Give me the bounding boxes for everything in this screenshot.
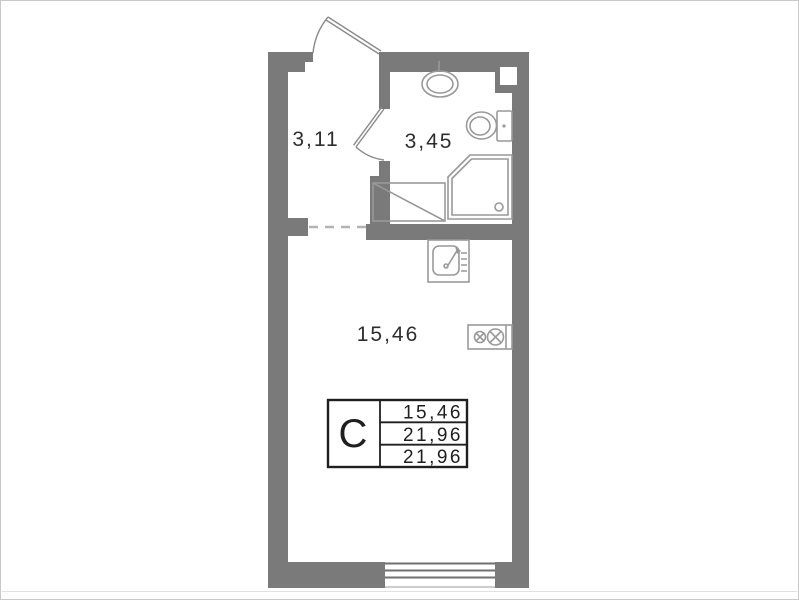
wall-bathroom-south <box>366 224 512 240</box>
wall-bottom-right-pier <box>495 562 529 588</box>
stove <box>468 325 512 349</box>
stamp-total-area: 21,96 <box>403 425 463 446</box>
vent-duct-opening <box>500 67 517 85</box>
floor-plan-canvas: 3,11 3,45 15,46 С 15,46 21,96 21,96 <box>0 0 799 600</box>
toilet-tank-button <box>502 124 505 127</box>
entrance-door-leaf <box>326 17 381 54</box>
shower <box>448 155 512 219</box>
door-jamb-notch <box>305 62 313 72</box>
wall-divider-upper <box>379 52 390 109</box>
wall-left <box>268 52 288 588</box>
room-area-living: 15,46 <box>357 323 420 346</box>
toilet <box>467 111 513 141</box>
wall-right <box>512 52 529 562</box>
area-stamp-table: С 15,46 21,96 21,96 <box>328 400 467 468</box>
room-area-hallway: 3,11 <box>292 128 339 151</box>
kitchen-sink <box>428 240 469 282</box>
window <box>385 564 495 588</box>
stamp-total-area-with-balcony: 21,96 <box>403 447 463 468</box>
entrance-door-arc <box>313 17 328 53</box>
bathroom-door-arc <box>356 147 384 160</box>
stove-burner-small-cross <box>477 334 484 341</box>
room-area-bathroom: 3,45 <box>405 130 454 153</box>
kitchen-sink-faucet <box>447 249 458 267</box>
floor-plan-drawing: 3,11 3,45 15,46 С 15,46 21,96 21,96 <box>0 0 799 600</box>
bathroom-door <box>354 107 384 160</box>
wall-bottom-left <box>268 562 385 588</box>
toilet-bowl-inner <box>470 117 490 135</box>
stamp-apartment-type: С <box>339 412 368 456</box>
kitchen-sink-faucet-base <box>444 264 448 268</box>
bathroom-door-leaf <box>354 107 384 147</box>
wall-hall-stub <box>288 218 308 236</box>
shower-tray-inner <box>452 159 508 215</box>
kitchen-sink-drainboard <box>461 253 467 271</box>
wash-basin-bowl-inner <box>427 75 453 93</box>
shower-drain <box>495 203 503 211</box>
stove-burner-large-cross <box>490 332 501 343</box>
stamp-living-area: 15,46 <box>403 403 463 424</box>
entrance-door <box>313 17 381 54</box>
kitchen-sink-basin <box>433 246 459 275</box>
